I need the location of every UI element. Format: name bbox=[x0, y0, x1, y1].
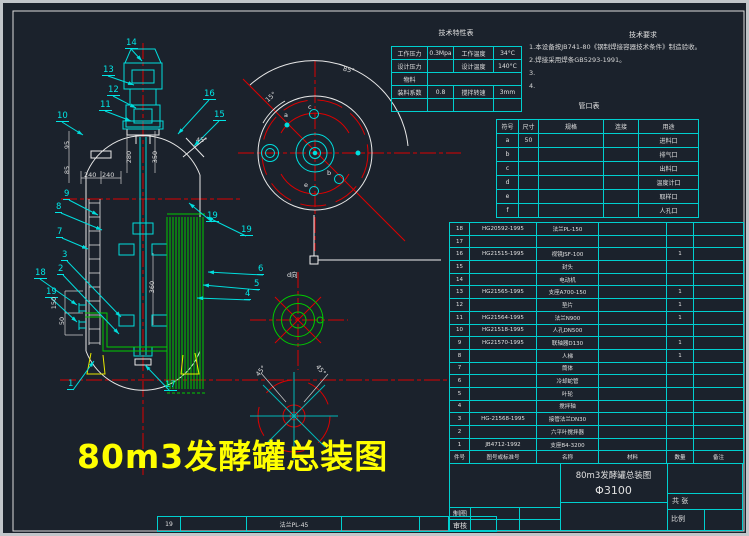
leader-line bbox=[62, 238, 88, 249]
drawing-frame bbox=[13, 11, 744, 531]
leader-line bbox=[67, 261, 121, 317]
leader-line bbox=[40, 279, 77, 305]
cad-viewport[interactable]: 80m3发酵罐总装图 技术特性表 工作压力0.3Mpa工作温度34°C设计压力设… bbox=[0, 0, 749, 536]
leader-line bbox=[208, 272, 263, 275]
bottom-view-star bbox=[250, 372, 338, 460]
leader-line bbox=[51, 298, 77, 322]
leader-line bbox=[178, 100, 209, 134]
leader-line bbox=[62, 122, 83, 135]
internal-ladder bbox=[89, 199, 100, 345]
top-view-outline bbox=[250, 61, 408, 210]
cooling-coil bbox=[85, 214, 205, 393]
drawing-svg bbox=[3, 3, 749, 536]
red-construction-lines bbox=[243, 79, 405, 452]
leader-line bbox=[131, 49, 142, 61]
leader-line bbox=[105, 111, 131, 121]
leader-line bbox=[203, 285, 259, 290]
balloon-leaders bbox=[40, 49, 263, 391]
leader-line bbox=[63, 275, 119, 334]
crosshair-cursor[interactable] bbox=[310, 215, 441, 264]
leader-line bbox=[113, 96, 136, 108]
leader-line bbox=[61, 213, 102, 230]
leader-line bbox=[108, 76, 134, 85]
leader-line bbox=[145, 365, 170, 391]
leader-line bbox=[69, 200, 98, 215]
leader-line bbox=[194, 121, 219, 146]
leader-line bbox=[73, 361, 94, 390]
leader-line bbox=[207, 217, 246, 236]
agitator-drive bbox=[79, 49, 167, 356]
centerlines bbox=[60, 43, 461, 475]
leader-line bbox=[197, 298, 250, 300]
